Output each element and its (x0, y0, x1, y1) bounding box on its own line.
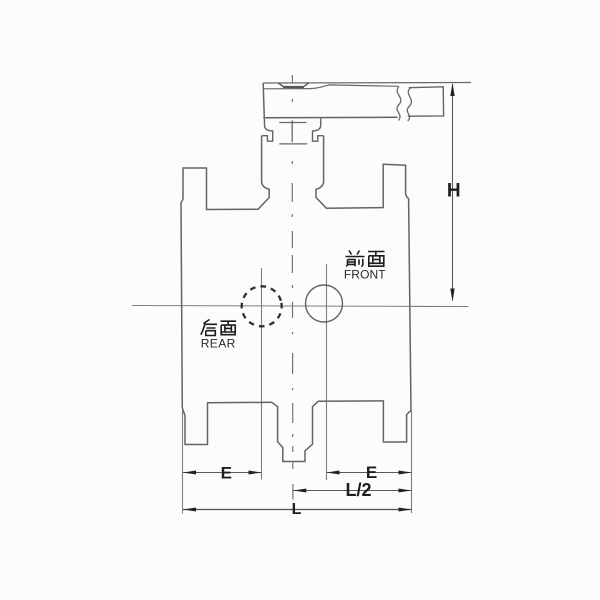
svg-text:H: H (447, 181, 461, 202)
svg-text:L/2: L/2 (345, 480, 371, 500)
svg-text:FRONT: FRONT (344, 268, 386, 282)
svg-text:E: E (221, 464, 232, 483)
svg-text:L: L (292, 501, 302, 518)
svg-text:REAR: REAR (201, 337, 236, 351)
